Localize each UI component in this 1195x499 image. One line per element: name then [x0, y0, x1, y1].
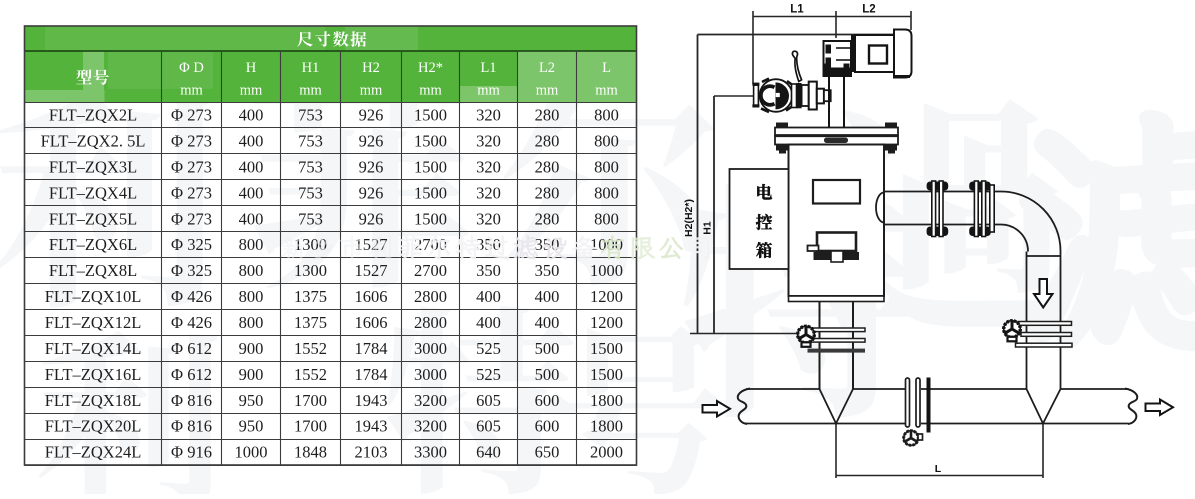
svg-text:753: 753 [298, 157, 323, 176]
svg-text:Φ 426: Φ 426 [171, 287, 212, 306]
svg-text:mm: mm [180, 83, 203, 99]
svg-text:3300: 3300 [414, 443, 447, 462]
svg-text:1375: 1375 [294, 313, 327, 332]
svg-text:1500: 1500 [414, 209, 447, 228]
svg-text:mm: mm [477, 83, 500, 99]
svg-text:926: 926 [359, 132, 384, 151]
svg-text:280: 280 [535, 106, 560, 125]
svg-text:1500: 1500 [590, 339, 623, 358]
svg-text:Φ 612: Φ 612 [171, 365, 212, 384]
svg-text:926: 926 [359, 106, 384, 125]
svg-text:1800: 1800 [590, 391, 623, 410]
svg-text:350: 350 [535, 261, 560, 280]
svg-text:950: 950 [239, 391, 264, 410]
svg-text:1500: 1500 [414, 132, 447, 151]
svg-text:mm: mm [595, 83, 618, 99]
svg-text:2000: 2000 [590, 443, 623, 462]
svg-text:600: 600 [535, 417, 560, 436]
svg-text:H1: H1 [302, 60, 320, 76]
svg-text:FLT–ZQX20L: FLT–ZQX20L [45, 417, 142, 436]
svg-text:mm: mm [360, 83, 383, 99]
svg-text:400: 400 [535, 287, 560, 306]
svg-text:800: 800 [239, 313, 264, 332]
svg-text:mm: mm [419, 83, 442, 99]
svg-text:Φ 273: Φ 273 [171, 157, 212, 176]
svg-text:FLT–ZQX14L: FLT–ZQX14L [45, 339, 142, 358]
svg-text:753: 753 [298, 132, 323, 151]
svg-text:1500: 1500 [414, 183, 447, 202]
svg-text:FLT–ZQX3L: FLT–ZQX3L [49, 157, 137, 176]
svg-text:1527: 1527 [355, 261, 388, 280]
svg-text:2800: 2800 [414, 313, 447, 332]
svg-text:400: 400 [239, 157, 264, 176]
svg-text:Φ 273: Φ 273 [171, 132, 212, 151]
svg-text:1552: 1552 [294, 365, 327, 384]
svg-text:H2: H2 [362, 60, 380, 76]
svg-text:950: 950 [239, 417, 264, 436]
svg-text:800: 800 [594, 132, 619, 151]
svg-text:400: 400 [476, 287, 501, 306]
svg-text:H: H [246, 60, 257, 76]
svg-text:mm: mm [299, 83, 322, 99]
svg-text:800: 800 [594, 157, 619, 176]
svg-text:640: 640 [476, 443, 501, 462]
svg-text:800: 800 [239, 261, 264, 280]
svg-text:1700: 1700 [294, 417, 327, 436]
svg-text:3000: 3000 [414, 339, 447, 358]
svg-text:320: 320 [476, 183, 501, 202]
svg-text:400: 400 [239, 183, 264, 202]
svg-text:650: 650 [535, 443, 560, 462]
svg-text:900: 900 [239, 365, 264, 384]
svg-text:320: 320 [476, 209, 501, 228]
svg-text:L1: L1 [480, 60, 496, 76]
svg-text:1300: 1300 [294, 261, 327, 280]
svg-text:525: 525 [476, 365, 501, 384]
svg-text:mm: mm [240, 83, 263, 99]
svg-text:1606: 1606 [355, 287, 388, 306]
svg-text:FLT–ZQX16L: FLT–ZQX16L [45, 365, 142, 384]
svg-text:525: 525 [476, 339, 501, 358]
svg-text:FLT–ZQX2L: FLT–ZQX2L [49, 106, 137, 125]
svg-text:Φ 916: Φ 916 [171, 443, 212, 462]
svg-text:800: 800 [239, 287, 264, 306]
svg-text:753: 753 [298, 209, 323, 228]
svg-text:800: 800 [594, 106, 619, 125]
svg-text:2103: 2103 [355, 443, 388, 462]
svg-text:1784: 1784 [355, 365, 388, 384]
svg-text:800: 800 [594, 209, 619, 228]
svg-text:1552: 1552 [294, 339, 327, 358]
svg-text:926: 926 [359, 209, 384, 228]
svg-text:280: 280 [535, 132, 560, 151]
svg-text:FLT–ZQX6L: FLT–ZQX6L [49, 235, 137, 254]
svg-text:280: 280 [535, 209, 560, 228]
svg-text:L2: L2 [862, 4, 875, 16]
svg-text:753: 753 [298, 106, 323, 125]
svg-text:Φ 273: Φ 273 [171, 209, 212, 228]
svg-text:Φ 273: Φ 273 [171, 106, 212, 125]
svg-text:400: 400 [476, 313, 501, 332]
svg-text:600: 600 [535, 391, 560, 410]
svg-text:1500: 1500 [414, 157, 447, 176]
svg-text:926: 926 [359, 183, 384, 202]
svg-text:3200: 3200 [414, 417, 447, 436]
svg-text:Φ 816: Φ 816 [171, 417, 212, 436]
svg-text:FLT–ZQX10L: FLT–ZQX10L [45, 287, 142, 306]
svg-text:L: L [602, 60, 611, 76]
svg-text:H2(H2*): H2(H2*) [683, 199, 695, 237]
svg-text:FLT–ZQX18L: FLT–ZQX18L [45, 391, 142, 410]
svg-text:1606: 1606 [355, 313, 388, 332]
svg-text:2700: 2700 [414, 261, 447, 280]
svg-text:280: 280 [535, 183, 560, 202]
svg-text:Φ 325: Φ 325 [171, 235, 212, 254]
svg-text:400: 400 [239, 132, 264, 151]
svg-text:H2*: H2* [418, 60, 443, 76]
svg-text:1943: 1943 [355, 417, 388, 436]
svg-text:FLT–ZQX12L: FLT–ZQX12L [45, 313, 142, 332]
svg-text:500: 500 [535, 339, 560, 358]
svg-text:L1: L1 [790, 4, 804, 16]
svg-text:280: 280 [535, 157, 560, 176]
svg-text:753: 753 [298, 183, 323, 202]
svg-text:L: L [935, 463, 942, 475]
svg-text:320: 320 [476, 157, 501, 176]
svg-text:350: 350 [476, 261, 501, 280]
svg-text:1800: 1800 [590, 417, 623, 436]
svg-text:1000: 1000 [590, 261, 623, 280]
svg-text:800: 800 [239, 235, 264, 254]
svg-text:1500: 1500 [414, 106, 447, 125]
svg-text:1200: 1200 [590, 287, 623, 306]
svg-text:1500: 1500 [590, 365, 623, 384]
svg-text:FLT–ZQX8L: FLT–ZQX8L [49, 261, 137, 280]
svg-text:605: 605 [476, 391, 501, 410]
svg-text:400: 400 [239, 209, 264, 228]
svg-text:400: 400 [239, 106, 264, 125]
svg-text:500: 500 [535, 365, 560, 384]
svg-text:1700: 1700 [294, 391, 327, 410]
svg-text:320: 320 [476, 106, 501, 125]
svg-text:FLT–ZQX4L: FLT–ZQX4L [49, 183, 137, 202]
svg-text:FLT–ZQX5L: FLT–ZQX5L [49, 209, 137, 228]
svg-text:FLT–ZQX24L: FLT–ZQX24L [45, 443, 142, 462]
svg-text:Φ 426: Φ 426 [171, 313, 212, 332]
svg-text:H1: H1 [702, 221, 714, 235]
svg-text:900: 900 [239, 339, 264, 358]
svg-text:400: 400 [535, 313, 560, 332]
svg-text:1943: 1943 [355, 391, 388, 410]
svg-text:1200: 1200 [590, 313, 623, 332]
svg-text:3000: 3000 [414, 365, 447, 384]
svg-text:Φ 816: Φ 816 [171, 391, 212, 410]
svg-text:926: 926 [359, 157, 384, 176]
svg-text:1848: 1848 [294, 443, 327, 462]
svg-text:Φ D: Φ D [179, 60, 204, 76]
svg-text:Φ 325: Φ 325 [171, 261, 212, 280]
svg-text:800: 800 [594, 183, 619, 202]
svg-text:Φ 612: Φ 612 [171, 339, 212, 358]
svg-text:2800: 2800 [414, 287, 447, 306]
svg-text:mm: mm [536, 83, 559, 99]
svg-text:L2: L2 [539, 60, 555, 76]
svg-text:FLT–ZQX2. 5L: FLT–ZQX2. 5L [41, 132, 146, 151]
svg-text:605: 605 [476, 417, 501, 436]
svg-text:1375: 1375 [294, 287, 327, 306]
svg-text:Φ 273: Φ 273 [171, 183, 212, 202]
svg-text:320: 320 [476, 132, 501, 151]
svg-text:1784: 1784 [355, 339, 388, 358]
svg-text:3200: 3200 [414, 391, 447, 410]
svg-text:1000: 1000 [235, 443, 268, 462]
